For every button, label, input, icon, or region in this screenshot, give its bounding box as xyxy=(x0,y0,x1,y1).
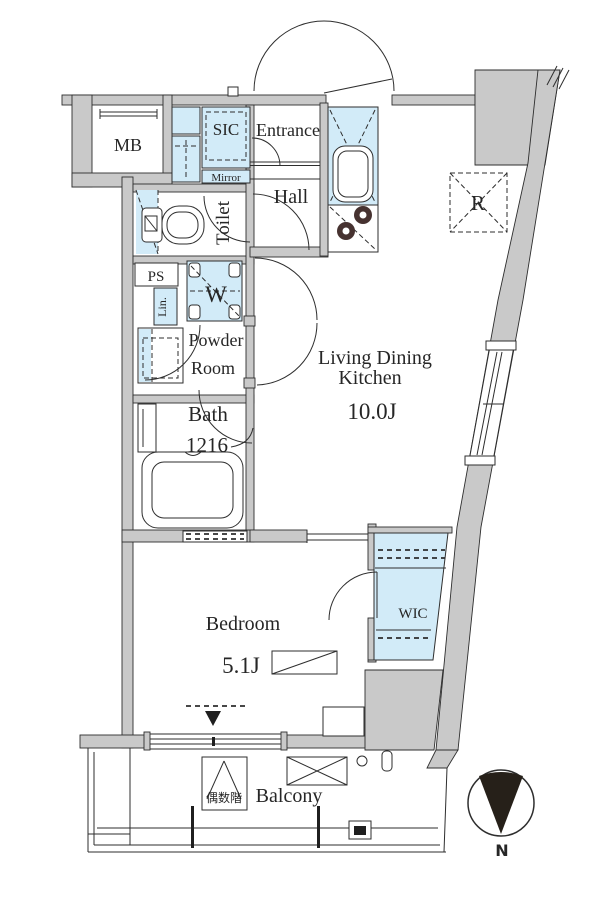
drain-icon xyxy=(357,756,367,766)
label-mirror: Mirror xyxy=(211,172,241,184)
west-outer-wall xyxy=(122,177,133,748)
label-north: N xyxy=(495,841,508,860)
railing-post xyxy=(191,806,194,848)
label-balcony: Balcony xyxy=(256,785,323,807)
kitchen-counter xyxy=(328,107,378,252)
railing-post xyxy=(317,806,320,848)
label-wic: WIC xyxy=(398,606,427,622)
label-ldk-size: 10.0J xyxy=(347,399,396,424)
label-entrance: Entrance xyxy=(256,120,320,140)
se-wall-mass xyxy=(365,670,443,750)
label-ldk-2: Kitchen xyxy=(338,367,401,389)
label-bath-size: 1216 xyxy=(186,433,228,457)
entrance-door-swing xyxy=(254,21,394,91)
balcony-access-marker xyxy=(205,711,221,726)
powder-door-swing xyxy=(257,323,317,385)
label-toilet: Toilet xyxy=(213,200,234,245)
wic-door-swing xyxy=(329,572,377,620)
ldk-window xyxy=(465,341,516,465)
wic-closet xyxy=(374,533,448,660)
label-floor-note: 偶数階 xyxy=(206,790,242,805)
entrance-step xyxy=(250,162,320,179)
bedroom-furniture xyxy=(272,651,337,674)
entrance-door-leaf xyxy=(324,79,392,93)
kitchen-wall xyxy=(320,103,328,256)
washer-door-swing xyxy=(255,258,317,320)
bedroom-window xyxy=(144,706,287,750)
floor-plan-drawing: MB SIC Entrance Mirror Hall Toilet PS W … xyxy=(0,0,603,900)
floor-plan: MB SIC Entrance Mirror Hall Toilet PS W … xyxy=(0,0,603,900)
bath-transom xyxy=(183,531,247,542)
label-ps: PS xyxy=(148,269,165,285)
stove xyxy=(328,205,378,252)
label-hall: Hall xyxy=(274,186,309,208)
pipe-slot xyxy=(382,751,392,771)
label-bedroom-size: 5.1J xyxy=(222,653,260,678)
label-linen: Lin. xyxy=(155,297,169,317)
vanity xyxy=(138,328,183,383)
label-mb: MB xyxy=(114,135,142,155)
toilet-fixture xyxy=(136,190,204,254)
compass xyxy=(468,770,534,836)
label-ldk-1: Living Dining xyxy=(318,347,432,369)
label-powder-2: Room xyxy=(191,358,235,378)
duct-step xyxy=(323,707,364,736)
label-washer: W xyxy=(205,282,227,307)
label-sic: SIC xyxy=(213,120,239,139)
label-powder-1: Powder xyxy=(189,330,244,350)
mb-door xyxy=(100,109,157,119)
label-fridge: R xyxy=(471,191,485,215)
label-bath: Bath xyxy=(188,402,228,426)
label-bedroom: Bedroom xyxy=(206,613,281,635)
